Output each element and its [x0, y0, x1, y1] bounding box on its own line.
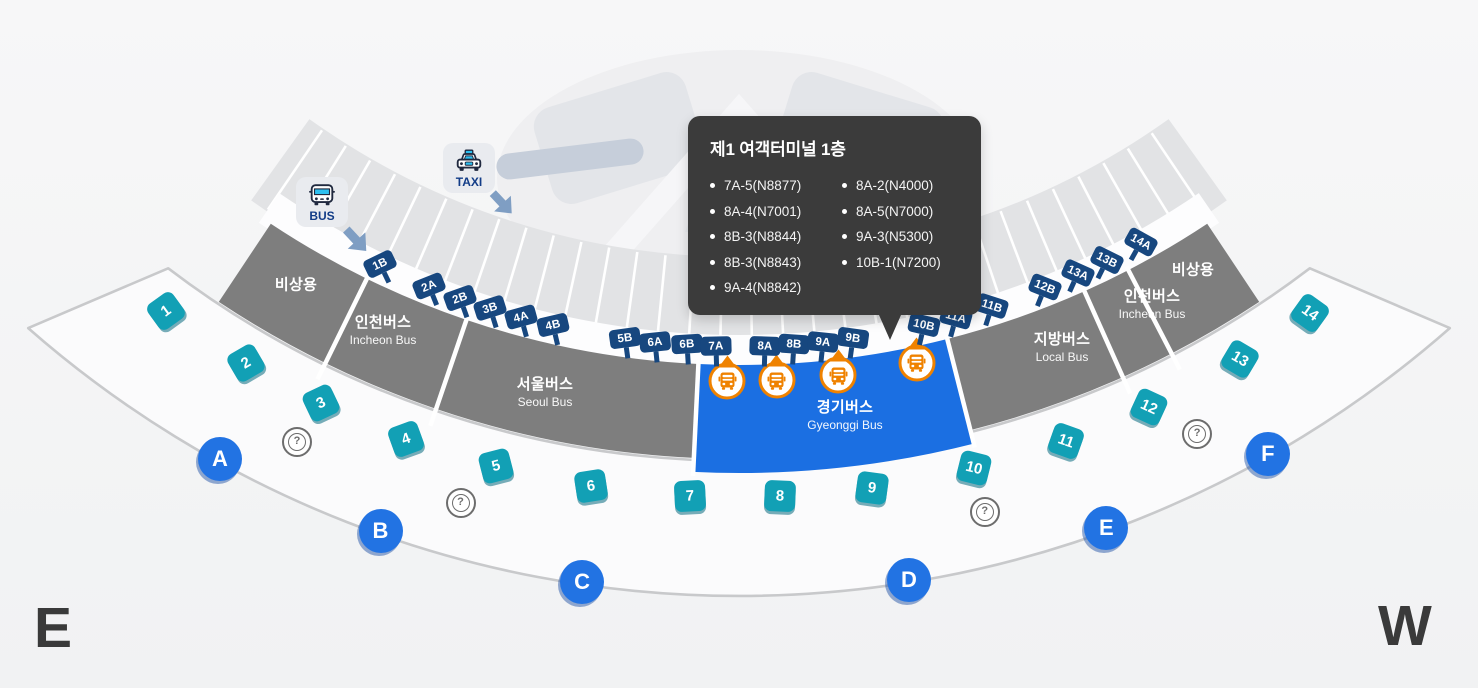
terminal1-curbside-map: 비상용 인천버스 Incheon Bus 서울버스 Seoul Bus 경기버스… — [0, 0, 1478, 688]
bus-bay-item: 8B-3(N8843) — [710, 250, 842, 276]
zone-label-seoul-bus: 서울버스 Seoul Bus — [517, 373, 573, 409]
map-canvas — [0, 0, 1478, 688]
zone-label-incheon-bus-right: 인천버스 Incheon Bus — [1119, 285, 1186, 321]
gate-sign: 7A — [700, 336, 732, 356]
curbside-stop-number: 6 — [573, 468, 608, 503]
tooltip-bay-list-col2: 8A-2(N4000)8A-5(N7000)9A-3(N5300)10B-1(N… — [842, 173, 941, 301]
zone-label-incheon-bus-left: 인천버스 Incheon Bus — [350, 311, 417, 347]
gate-sign-label: 5B — [617, 331, 634, 345]
question-mark-glyph: ? — [288, 433, 306, 451]
bus-icon — [717, 371, 737, 391]
zone-label-kr: 서울버스 — [517, 373, 573, 394]
gate-sign-label: 4B — [544, 317, 561, 332]
bus-bay-item: 9A-4(N8842) — [710, 275, 842, 301]
compass-west-label: W — [1378, 598, 1432, 655]
exit-door-letter: B — [359, 509, 403, 553]
gate-sign-label: 9B — [844, 331, 861, 345]
exit-door-letter: A — [198, 437, 242, 481]
gate-sign-label: 11B — [980, 297, 1004, 315]
gate-sign-label: 6B — [679, 338, 695, 351]
gate-sign-label: 8B — [786, 338, 802, 351]
information-icon: ? — [1182, 419, 1212, 449]
gate-sign-label: 2B — [451, 289, 469, 305]
zone-label-emergency-left: 비상용 — [275, 274, 317, 295]
curbside-stop-number: 8 — [764, 480, 796, 512]
zone-label-gyeonggi-bus: 경기버스 Gyeonggi Bus — [807, 396, 882, 432]
bus-access-tile: BUS — [296, 177, 348, 227]
exit-door-letter: E — [1084, 506, 1128, 550]
compass-east-label: E — [34, 600, 72, 657]
zone-label-en: Incheon Bus — [1119, 307, 1186, 321]
information-icon: ? — [446, 488, 476, 518]
bus-bay-item: 8A-2(N4000) — [842, 173, 941, 199]
zone-label-kr: 비상용 — [1172, 259, 1214, 280]
gate-sign-label: 6A — [647, 335, 663, 348]
gate-sign-label: 10B — [912, 317, 936, 334]
gate-sign: 9A — [806, 331, 839, 353]
curbside-stop-number: 7 — [673, 479, 706, 512]
zone-label-kr: 인천버스 — [1119, 285, 1186, 306]
zone-label-en: Local Bus — [1034, 350, 1090, 364]
gate-sign-label: 4A — [512, 309, 530, 325]
gate-sign: 6B — [671, 334, 703, 355]
gate-sign-label: 7A — [708, 339, 723, 351]
question-mark-glyph: ? — [452, 494, 470, 512]
zone-label-kr: 인천버스 — [350, 311, 417, 332]
bus-tile-label: BUS — [309, 209, 334, 223]
zone-label-local-bus: 지방버스 Local Bus — [1034, 328, 1090, 364]
bus-stop-marker[interactable] — [820, 357, 857, 394]
exit-door-letter: C — [560, 560, 604, 604]
zone-label-en: Incheon Bus — [350, 333, 417, 347]
taxi-tile-label: TAXI — [456, 175, 482, 189]
gate-sign: 8A — [749, 336, 781, 356]
gate-sign: 8B — [778, 334, 810, 355]
bus-bay-item: 8A-4(N7001) — [710, 199, 842, 225]
bus-bay-item: 10B-1(N7200) — [842, 250, 941, 276]
gate-sign-label: 2A — [420, 277, 439, 294]
bus-icon — [307, 183, 337, 208]
question-mark-glyph: ? — [1188, 425, 1206, 443]
zone-label-en: Gyeonggi Bus — [807, 418, 882, 432]
gate-sign-label: 12B — [1032, 278, 1057, 297]
bus-bay-item: 8A-5(N7000) — [842, 199, 941, 225]
exit-door-letter: D — [887, 558, 931, 602]
zone-label-kr: 경기버스 — [807, 396, 882, 417]
gate-sign-label: 3B — [481, 300, 499, 316]
gate-sign-label: 9A — [814, 335, 830, 348]
bus-bay-item: 9A-3(N5300) — [842, 224, 941, 250]
taxi-direction-arrow — [484, 185, 520, 226]
bus-bay-item: 8B-3(N8844) — [710, 224, 842, 250]
information-icon: ? — [970, 497, 1000, 527]
zone-label-en: Seoul Bus — [517, 395, 573, 409]
bus-icon — [828, 365, 848, 385]
terminal-info-tooltip: 제1 여객터미널 1층 7A-5(N8877)8A-4(N7001)8B-3(N… — [688, 116, 981, 315]
zone-label-kr: 지방버스 — [1034, 328, 1090, 349]
bus-icon — [767, 370, 787, 390]
bus-stop-marker[interactable] — [898, 344, 935, 381]
bus-stop-marker[interactable] — [709, 362, 746, 399]
question-mark-glyph: ? — [976, 503, 994, 521]
curbside-stop-number: 9 — [854, 471, 889, 506]
bus-bay-item: 7A-5(N8877) — [710, 173, 842, 199]
tooltip-title: 제1 여객터미널 1층 — [710, 135, 959, 160]
zone-label-kr: 비상용 — [275, 274, 317, 295]
information-icon: ? — [282, 427, 312, 457]
zone-label-emergency-right: 비상용 — [1172, 259, 1214, 280]
exit-door-letter: F — [1246, 432, 1290, 476]
bus-direction-arrow — [337, 221, 375, 264]
bus-icon — [907, 353, 927, 373]
tooltip-columns: 7A-5(N8877)8A-4(N7001)8B-3(N8844)8B-3(N8… — [710, 173, 959, 301]
taxi-icon — [453, 149, 485, 174]
gate-sign: 6A — [639, 331, 672, 353]
gate-sign-label: 8A — [757, 339, 772, 351]
tooltip-pointer — [879, 315, 901, 340]
tooltip-bay-list-col1: 7A-5(N8877)8A-4(N7001)8B-3(N8844)8B-3(N8… — [710, 173, 842, 301]
bus-stop-marker[interactable] — [758, 362, 795, 399]
